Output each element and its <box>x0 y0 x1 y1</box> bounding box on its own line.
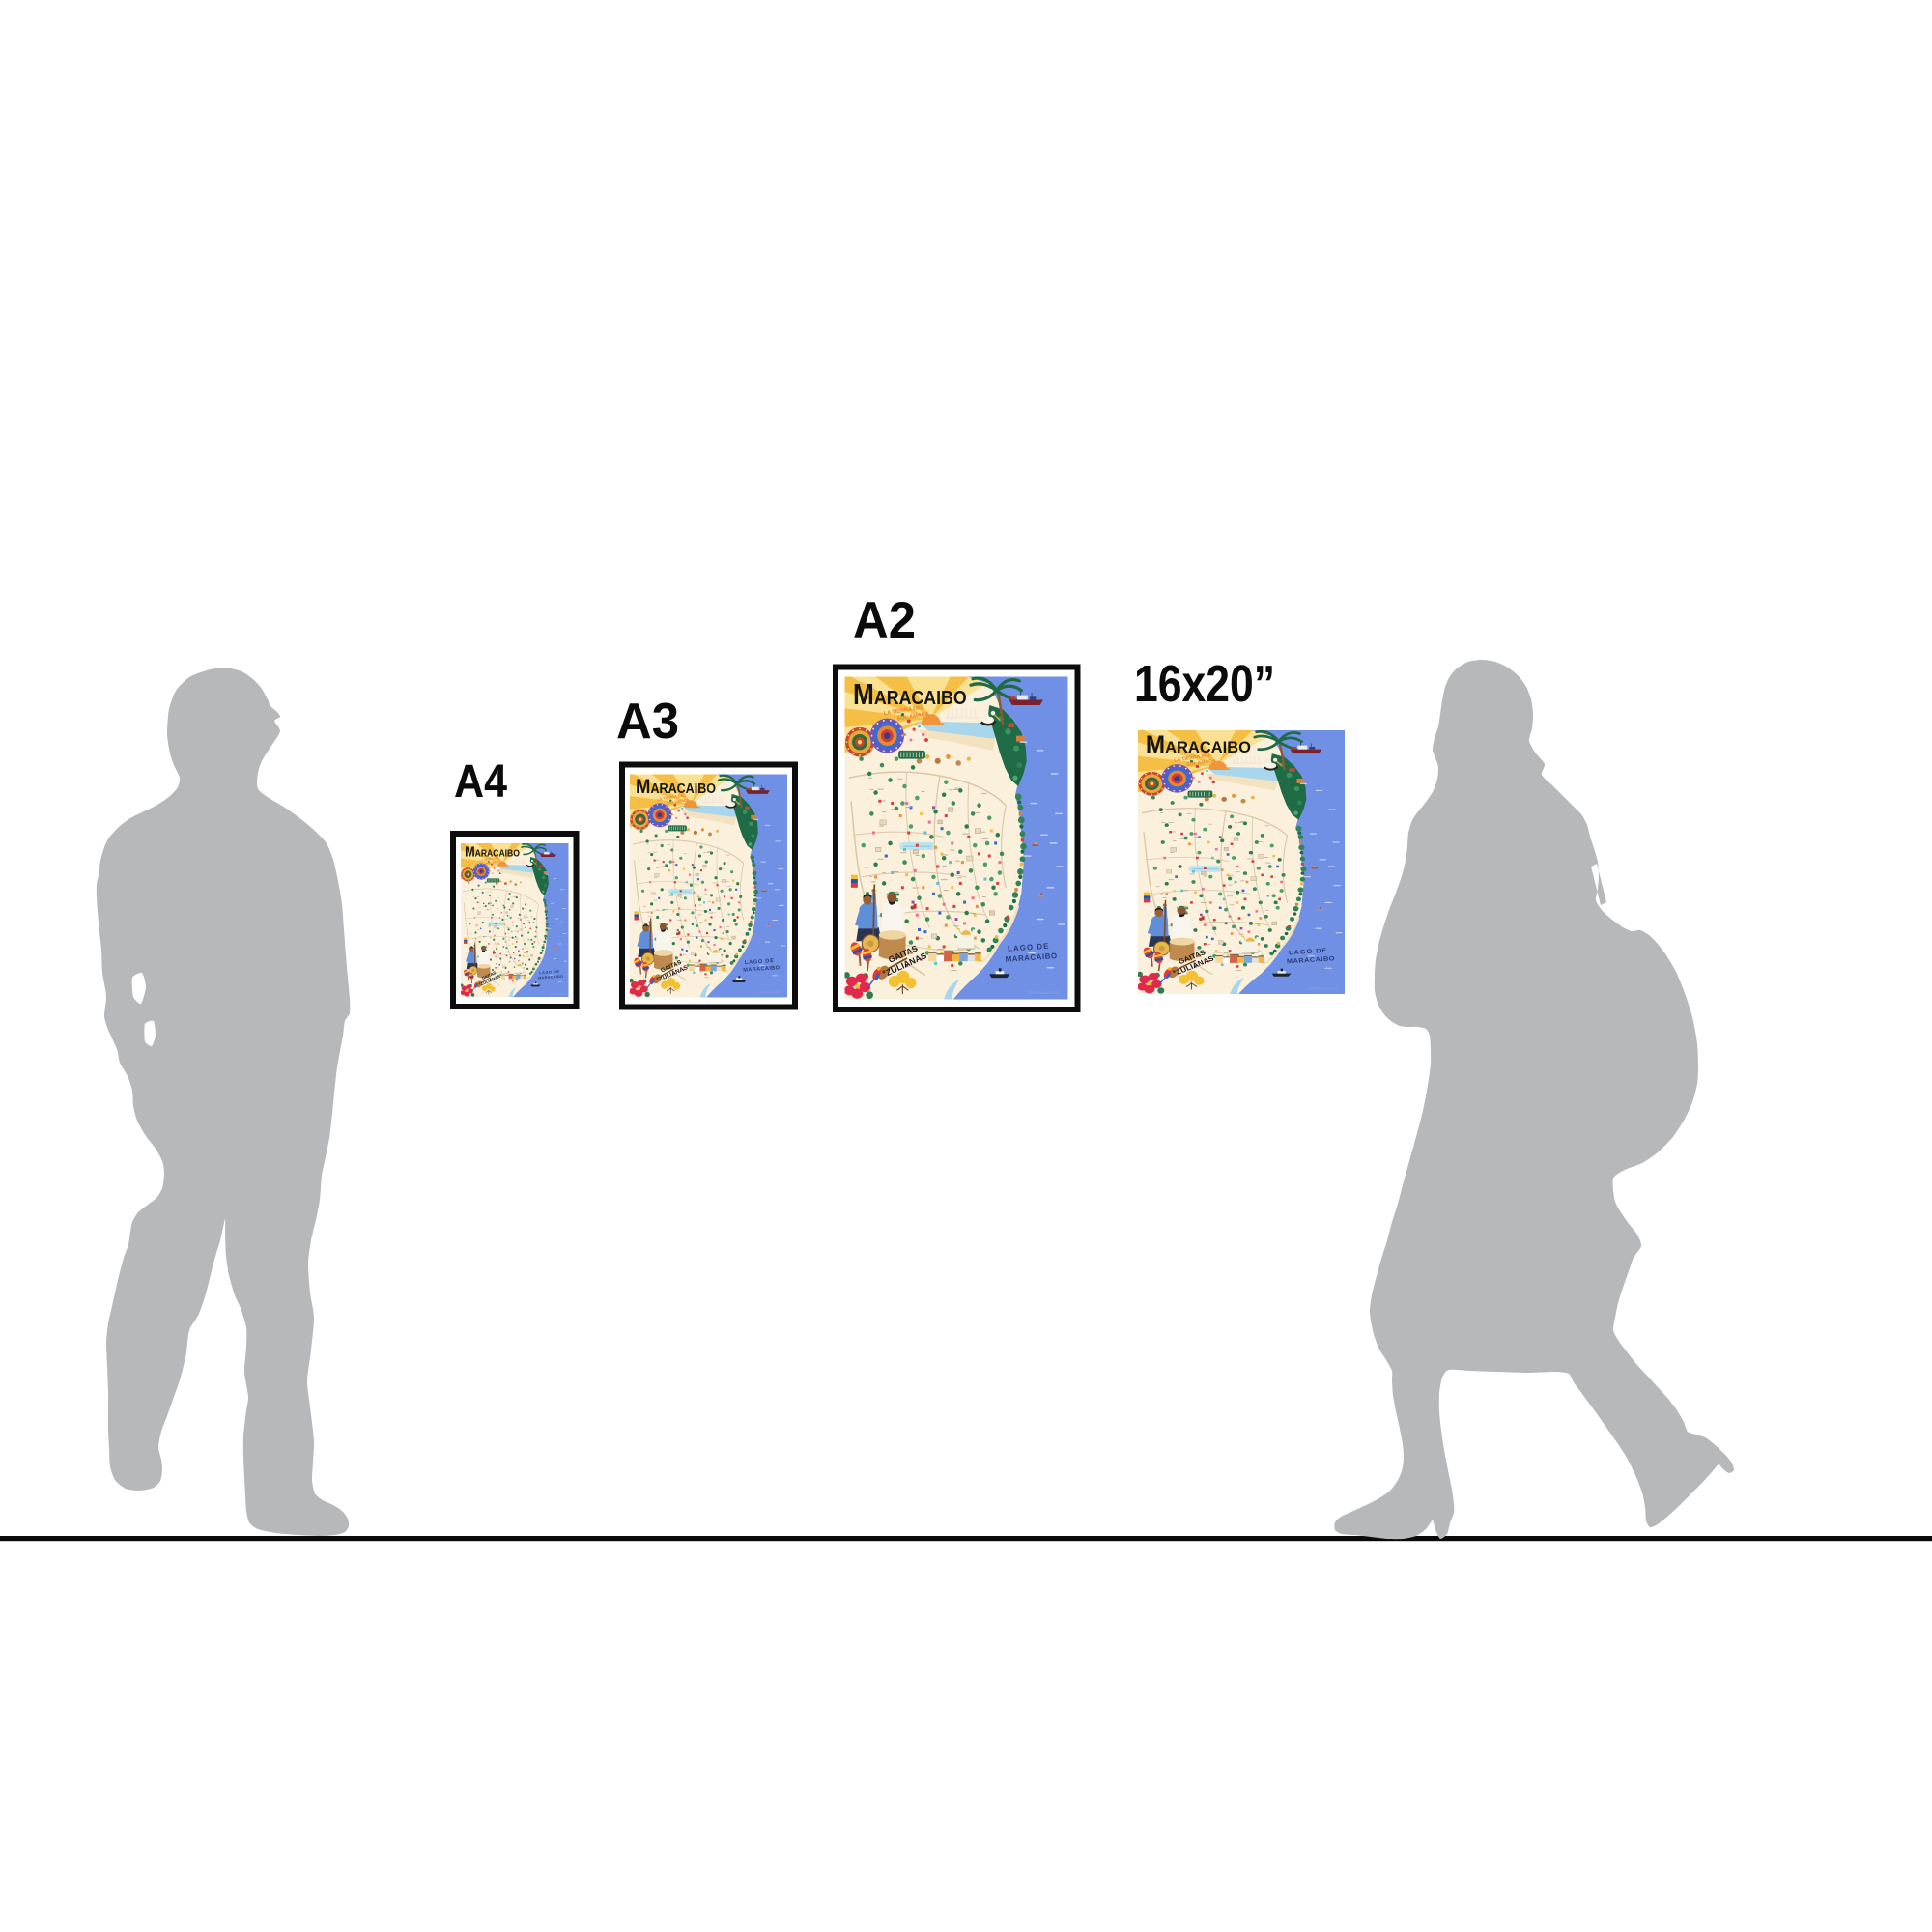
svg-text:A4: A4 <box>454 756 507 808</box>
svg-text:A3: A3 <box>616 694 679 750</box>
svg-text:16x20”: 16x20” <box>1134 655 1275 713</box>
svg-text:A2: A2 <box>853 592 916 649</box>
